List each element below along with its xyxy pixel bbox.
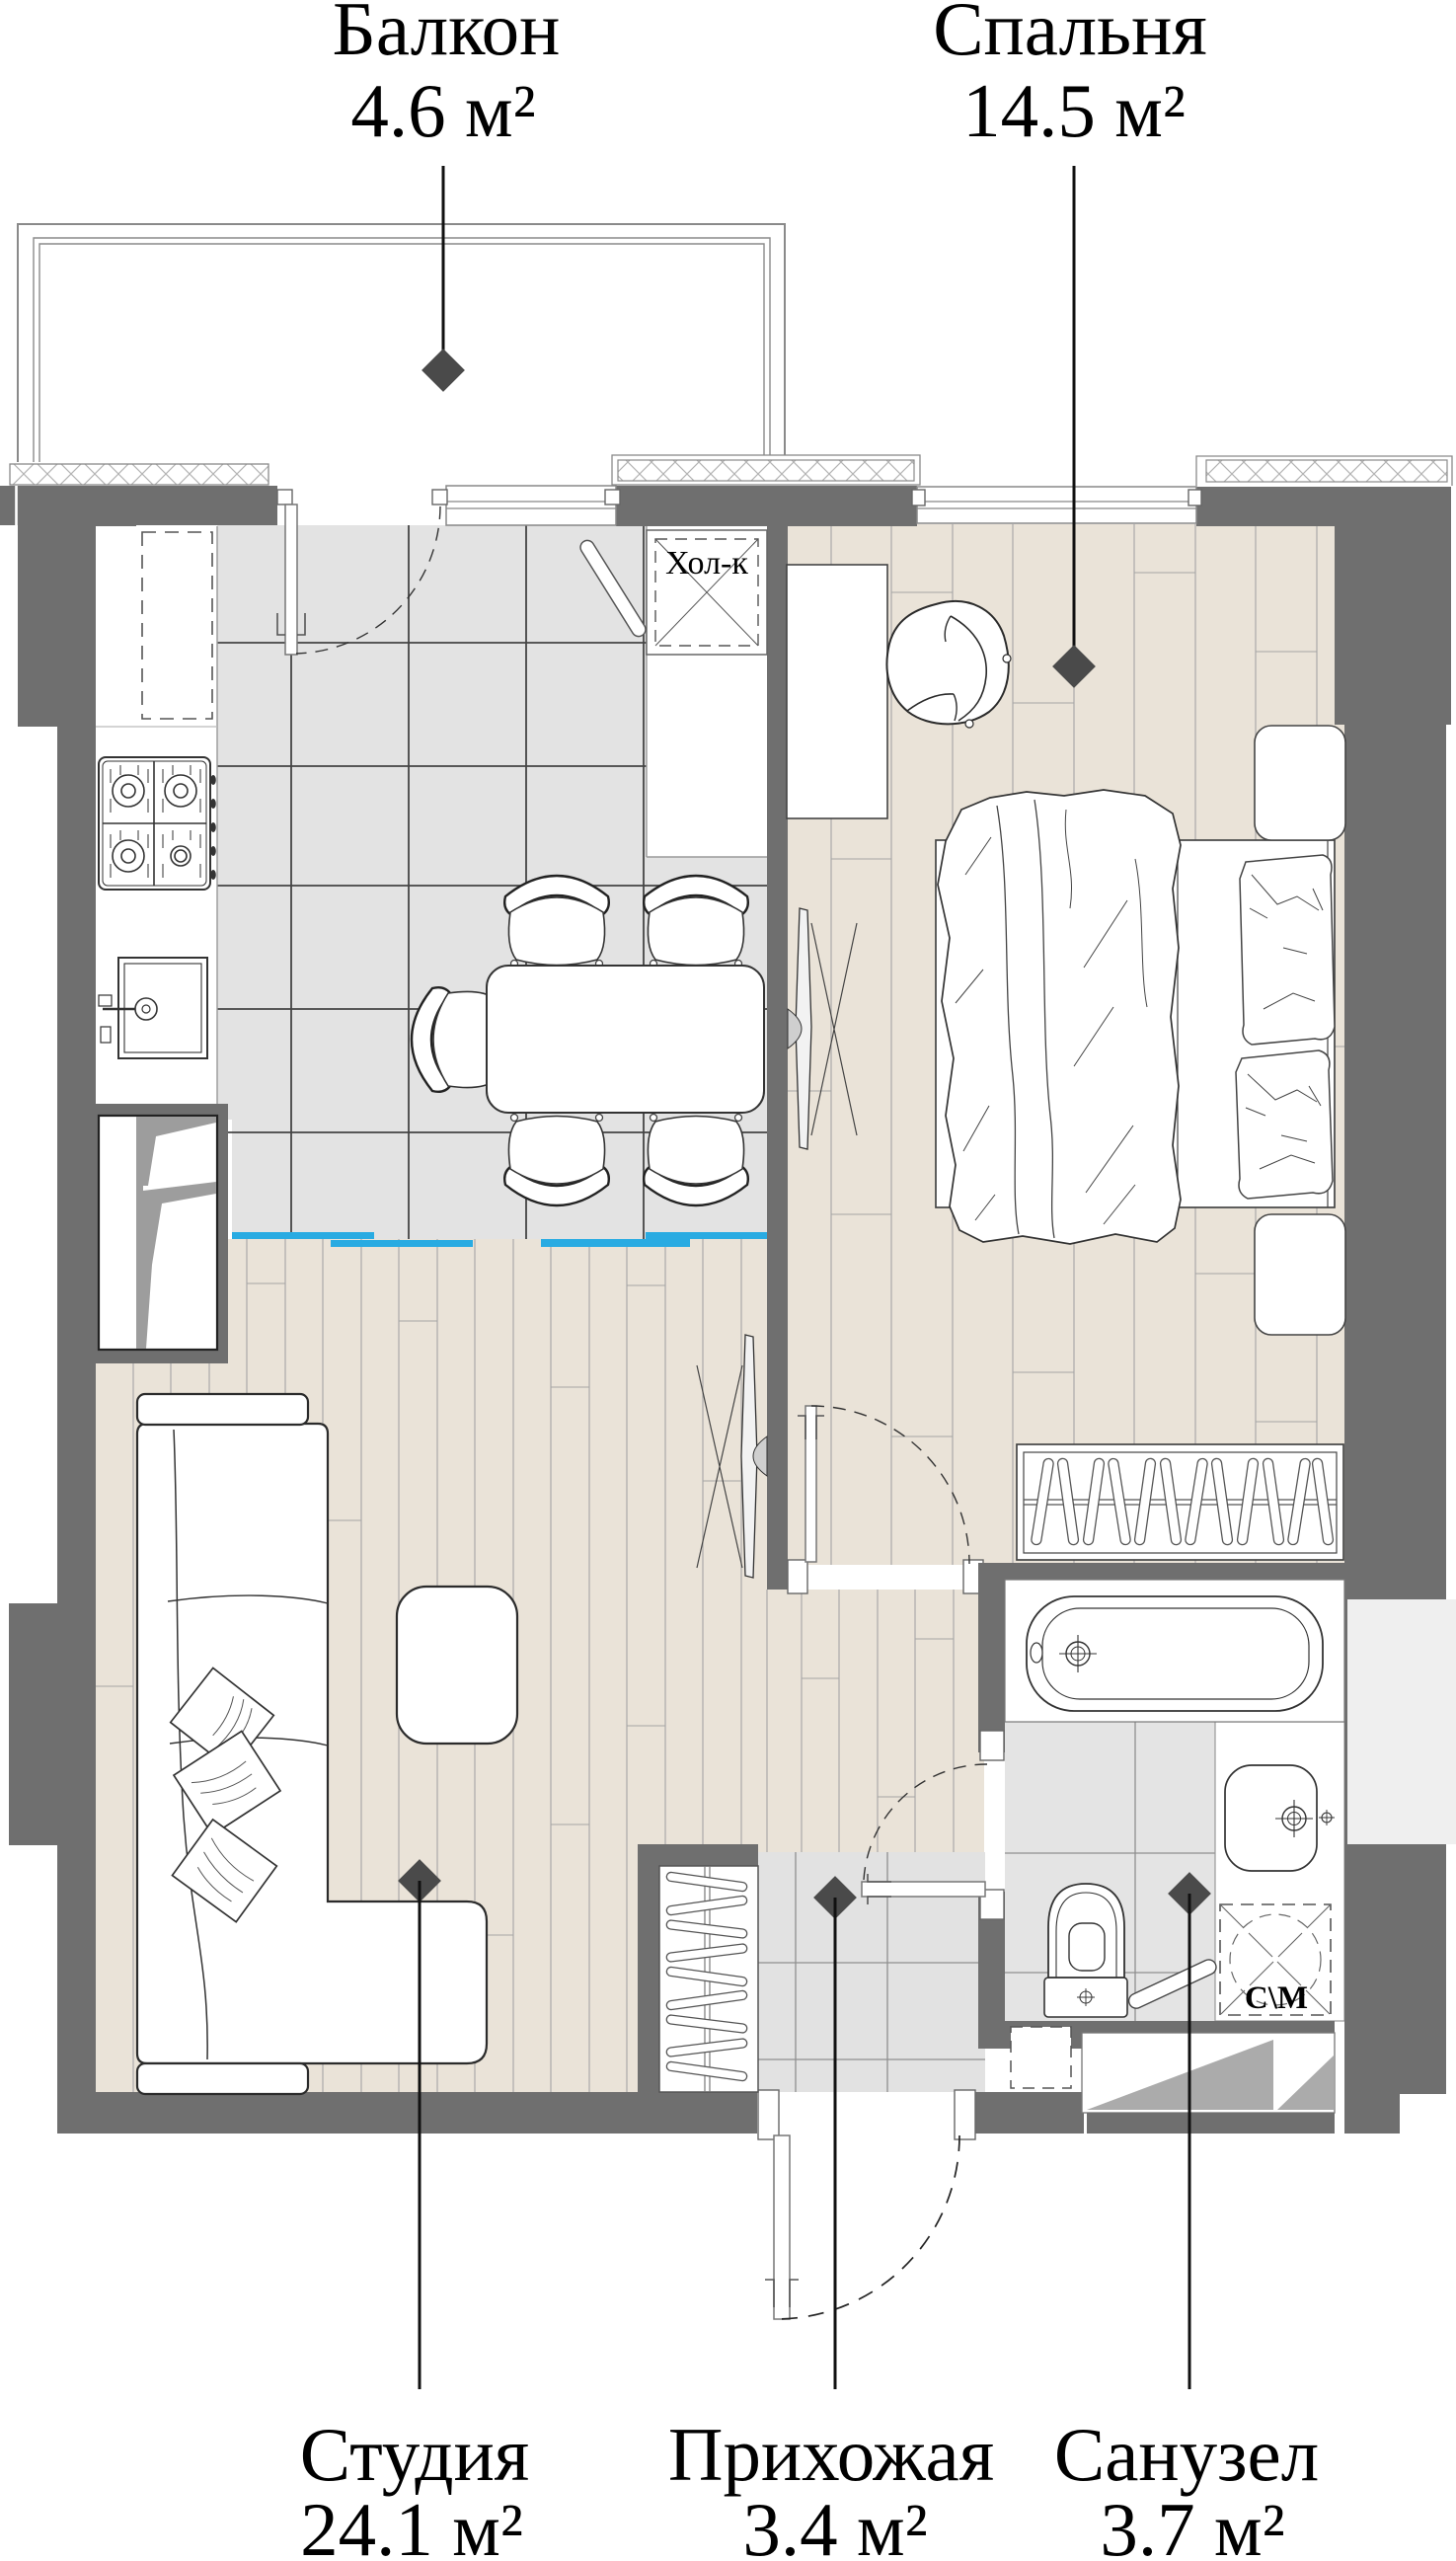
svg-text:Санузел: Санузел [1054, 2412, 1319, 2497]
svg-text:Балкон: Балкон [333, 0, 561, 71]
svg-text:3.4 м²: 3.4 м² [742, 2487, 927, 2561]
svg-text:Хол-к: Хол-к [665, 545, 748, 582]
svg-text:3.7 м²: 3.7 м² [1100, 2487, 1284, 2561]
svg-text:14.5 м²: 14.5 м² [962, 68, 1186, 153]
svg-text:Спальня: Спальня [933, 0, 1207, 71]
svg-text:Прихожая: Прихожая [668, 2412, 994, 2497]
svg-text:24.1 м²: 24.1 м² [300, 2487, 523, 2561]
svg-text:Студия: Студия [300, 2412, 529, 2497]
svg-text:С\М: С\М [1245, 1980, 1308, 2016]
svg-text:4.6 м²: 4.6 м² [350, 68, 535, 153]
